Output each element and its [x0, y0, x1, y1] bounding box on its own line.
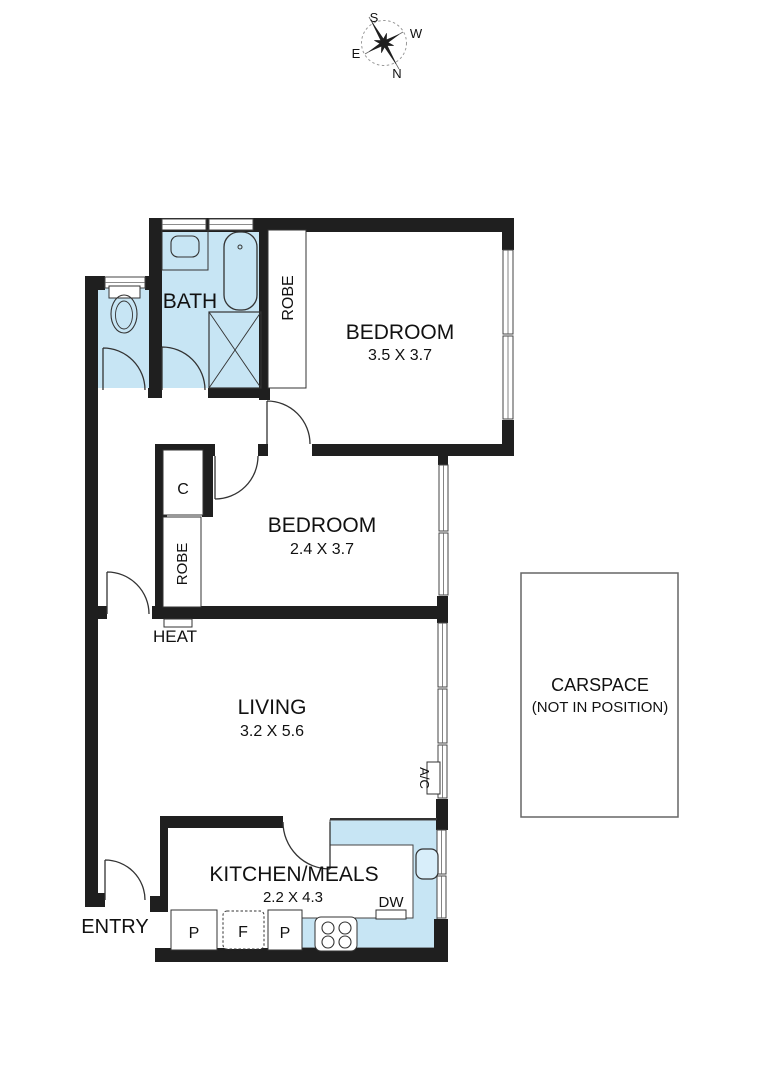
- floorplan-svg: S W E N: [0, 0, 764, 1080]
- dishwasher-label: DW: [379, 894, 405, 911]
- wall-living-kitchen-junction: [436, 799, 448, 830]
- wall-cupboard-right: [202, 450, 213, 517]
- fridge-label: F: [238, 924, 248, 941]
- wall-left: [85, 276, 98, 895]
- kitchen-dims: 2.2 X 4.3: [263, 889, 323, 906]
- cupboard-label: C: [177, 481, 189, 498]
- cooktop-icon: [315, 917, 357, 951]
- bedroom2-label: BEDROOM: [268, 514, 377, 537]
- robe2-label: ROBE: [174, 543, 191, 586]
- door-entry: [105, 860, 145, 900]
- door-kitchen: [283, 822, 330, 869]
- wall-left-foot: [85, 893, 105, 907]
- compass-north-label: N: [392, 66, 401, 81]
- wall-bath-bottom-b: [208, 388, 265, 398]
- wall-bed-divider-b: [258, 444, 268, 456]
- window-bed1-a: [503, 250, 513, 334]
- window-kitchen-b: [437, 876, 446, 918]
- window-bed2-b: [439, 533, 448, 595]
- bedroom2-dims: 2.4 X 3.7: [290, 541, 354, 558]
- bedroom1-label: BEDROOM: [346, 321, 455, 344]
- kitchen-label: KITCHEN/MEALS: [209, 863, 378, 886]
- bath-label: BATH: [163, 290, 217, 313]
- compass-east-label: E: [352, 46, 361, 61]
- wall-bed1-right-top: [502, 218, 514, 250]
- compass-west-label: W: [410, 26, 423, 41]
- wall-bed-divider-c: [312, 444, 514, 456]
- carspace-sublabel: (NOT IN POSITION): [532, 699, 668, 716]
- wall-kitchen-top: [160, 816, 283, 828]
- pantry-right-label: P: [280, 925, 291, 942]
- ac-label: A/C: [417, 767, 432, 789]
- window-bed1-b: [503, 336, 513, 419]
- compass-rose: S W E N: [352, 10, 423, 81]
- carspace-label: CARSPACE: [551, 675, 649, 695]
- wall-living-top-b: [152, 606, 448, 619]
- window-bath-2: [209, 219, 253, 230]
- wall-kitchen-left: [160, 816, 168, 900]
- window-living-a: [438, 623, 447, 687]
- wall-wc-bath-divider: [149, 218, 162, 393]
- floorplan-page: S W E N: [0, 0, 764, 1080]
- wall-bed2-living-junction: [437, 596, 448, 623]
- compass-south-label: S: [370, 10, 379, 25]
- window-living-b: [438, 689, 447, 743]
- door-bedroom2: [215, 456, 258, 499]
- sink-icon: [416, 849, 438, 879]
- heat-label: HEAT: [153, 627, 197, 646]
- dishwasher-unit: [376, 910, 406, 919]
- heater-unit: [164, 619, 192, 627]
- door-hall: [107, 572, 149, 614]
- wall-kitchen-stub: [150, 896, 168, 912]
- window-bed2-a: [439, 465, 448, 531]
- window-bath-1: [162, 219, 206, 230]
- door-bedroom1: [267, 401, 310, 444]
- bedroom1-dims: 3.5 X 3.7: [368, 347, 432, 364]
- compass-star-icon: [357, 14, 410, 73]
- wall-bed2-right-stub: [438, 456, 448, 465]
- robe1-label: ROBE: [280, 275, 297, 320]
- carspace-box: [521, 573, 678, 817]
- living-label: LIVING: [238, 696, 307, 719]
- living-dims: 3.2 X 5.6: [240, 723, 304, 740]
- pantry-left-label: P: [189, 925, 200, 942]
- entry-label: ENTRY: [81, 916, 148, 938]
- wall-bed1-right-bottom: [502, 420, 514, 446]
- wall-living-top-a: [88, 606, 107, 619]
- wall-bath-bottom-a: [148, 388, 162, 398]
